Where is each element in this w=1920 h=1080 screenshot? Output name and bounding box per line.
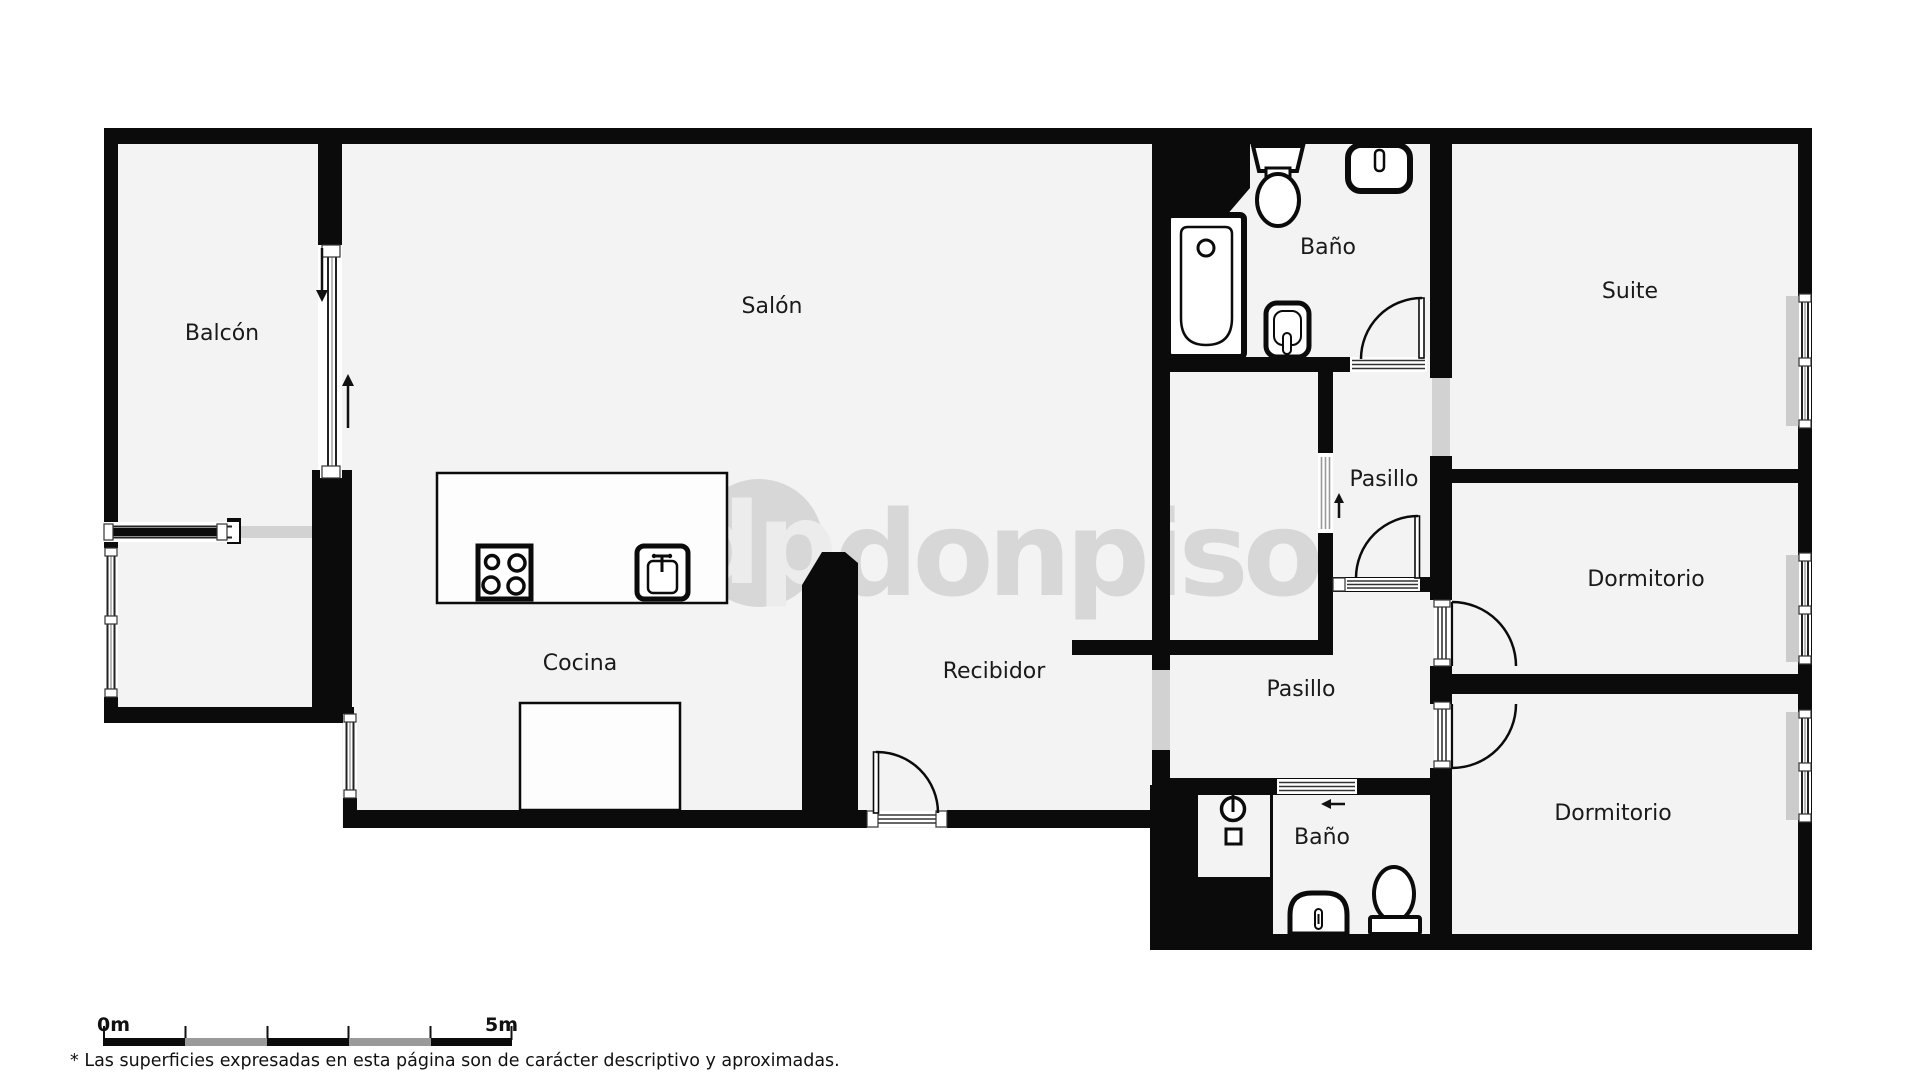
scale-segment: [349, 1038, 431, 1046]
window-icon: [104, 548, 118, 697]
toilet-icon: [1253, 146, 1303, 226]
floor-balcon: [118, 142, 318, 710]
opening-recibidor-pasillo: [1152, 670, 1170, 750]
kitchen-sink-icon: [637, 546, 688, 599]
threshold-bathroom-top: [1350, 357, 1427, 372]
room-label-suite: Suite: [1602, 279, 1658, 304]
room-label-recibidor: Recibidor: [943, 659, 1047, 684]
room-label-pasillo-top: Pasillo: [1349, 467, 1418, 492]
wall-segment: [1798, 128, 1812, 950]
window-icon: [1786, 294, 1811, 428]
footnote-text: * Las superficies expresadas en esta pág…: [70, 1051, 840, 1071]
scale-start-label: 0m: [97, 1014, 130, 1036]
water-heater-icon: [1290, 893, 1347, 934]
wall-segment: [1318, 533, 1333, 640]
wall-segment: [318, 128, 342, 245]
scale-segment: [185, 1038, 267, 1046]
wall-segment: [1430, 128, 1452, 378]
room-label-dormitorio-bottom: Dormitorio: [1554, 801, 1671, 826]
scale-end-label: 5m: [485, 1014, 518, 1036]
bidet-icon: [1266, 303, 1309, 357]
opening-suite-doorway: [1432, 378, 1450, 456]
threshold-bathroom-bottom: [1277, 779, 1357, 794]
room-label-pasillo-bottom: Pasillo: [1266, 677, 1335, 702]
scale-segment: [267, 1038, 349, 1046]
room-label-balcon: Balcón: [185, 321, 259, 346]
room-label-salon: Salón: [742, 294, 803, 319]
wall-segment: [104, 128, 1812, 144]
room-label-bano-bottom: Baño: [1294, 825, 1350, 850]
scale-segment: [103, 1038, 185, 1046]
wall-segment: [1430, 469, 1812, 483]
wall-segment: [343, 810, 867, 828]
watermark: dp donpiso: [681, 479, 1319, 623]
window-icon: [343, 714, 357, 798]
window-icon: [320, 245, 342, 478]
handbasin-icon: [1348, 145, 1410, 191]
shower-tray-icon: [1226, 829, 1241, 844]
window-icon: [1786, 710, 1811, 822]
scale-segment: [431, 1038, 512, 1046]
opening-storage-room: [1318, 453, 1333, 533]
room-label-cocina: Cocina: [543, 651, 617, 676]
room-label-bano-top: Baño: [1300, 235, 1356, 260]
window-icon: [1786, 553, 1811, 664]
wall-segment: [1430, 674, 1812, 694]
threshold-dormitorio-mid: [1434, 600, 1450, 666]
floorplan-canvas: dp donpiso: [0, 0, 1920, 1080]
wall-segment: [312, 470, 352, 723]
threshold-dormitorio-bottom: [1434, 702, 1450, 768]
watermark-brand: donpiso: [834, 485, 1319, 623]
wall-segment: [1430, 768, 1452, 950]
stove-icon: [478, 546, 531, 599]
wall-segment: [1318, 372, 1333, 453]
wall-segment: [802, 552, 858, 828]
floor-right-rooms: [1452, 142, 1798, 950]
room-label-dormitorio-mid: Dormitorio: [1587, 567, 1704, 592]
threshold-corridor: [1333, 578, 1420, 591]
kitchen-counter: [520, 703, 680, 810]
wall-segment: [1072, 640, 1333, 655]
bathtub-icon: [1168, 215, 1244, 357]
